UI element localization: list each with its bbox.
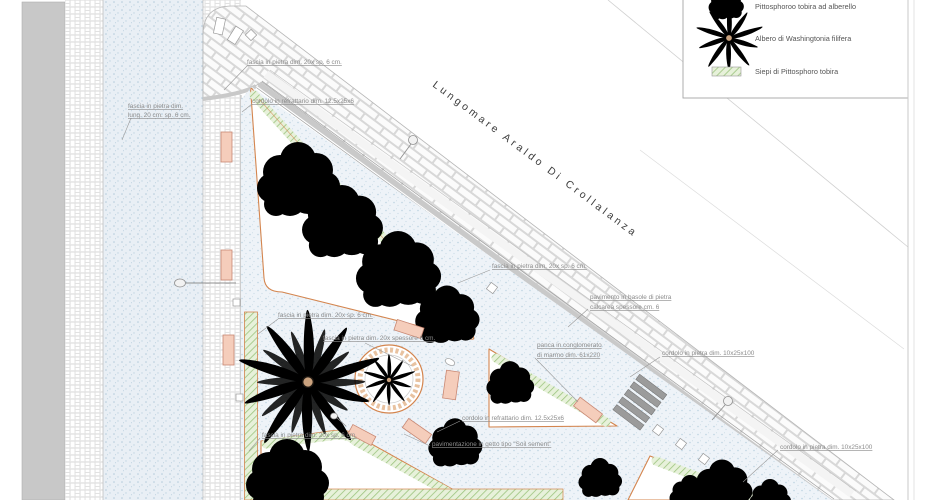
bollard	[233, 299, 240, 306]
annotation-fascia-left-1: fascia in pietra dim.	[128, 103, 183, 110]
site-plan-viewport: Lungomare Araldo Di Crollalanza	[0, 0, 950, 500]
annotation-fascia-bottom: fascia in pietra dim. 20x sp. 6 cm.	[262, 432, 357, 439]
circular-planter	[355, 345, 423, 413]
legend-item-label: Albero di Washingtonia filifera	[755, 34, 852, 43]
building-strip	[22, 2, 65, 500]
annotation-fascia-left-2: lung. 20 cm. sp. 6 cm.	[128, 112, 191, 119]
annotation-cordolo-refrattario-1: cordolo in refrattario dim. 12.5x25x6	[252, 98, 354, 105]
annotation-fascia-top: fascia in pietra dim. 20x sp. 6 cm.	[247, 59, 342, 66]
annotation-cordolo-refrattario-2: cordolo in refrattario dim. 12.5x25x6	[462, 415, 564, 422]
site-plan-drawing: Lungomare Araldo Di Crollalanza	[0, 0, 950, 500]
legend-item-label: Siepi di Pittosphoro tobira	[755, 67, 839, 76]
annotation-fascia-planter: fascia in pietra dim. 20x spessore 6 cm.	[323, 335, 435, 342]
annotation-soil-sement: pavimentazione in getto tipo "Soil semen…	[432, 441, 551, 448]
annotation-panca-2: di marmo dim. 61x220	[537, 352, 601, 359]
sidewalk-west	[65, 0, 103, 500]
annotation-pavimento-1: pavimento in basole di pietra	[590, 294, 672, 301]
hedge-band-bottom	[318, 489, 563, 500]
hedge-icon	[712, 67, 741, 76]
annotation-fascia-mid: fascia in pietra dim. 20x sp. 6 cm.	[492, 263, 587, 270]
bench	[221, 132, 232, 162]
legend: Pittosphoroo tobira ad alberello Albero …	[683, 0, 908, 98]
roadway-west	[103, 0, 203, 500]
annotation-fascia-palm: fascia in pietra dim. 20x sp. 6 cm.	[278, 312, 373, 319]
bollard	[236, 394, 243, 401]
legend-item-label: Pittosphoroo tobira ad alberello	[755, 2, 856, 11]
annotation-cordolo-pietra-1: cordolo in pietra dim. 10x25x100	[662, 350, 755, 357]
annotation-pavimento-2: calcarea spessore cm. 6	[590, 304, 660, 311]
annotation-panca-1: panca in conglomerato	[537, 342, 602, 349]
bench	[221, 250, 232, 280]
bench	[223, 335, 234, 365]
annotation-cordolo-pietra-2: cordolo in pietra dim. 10x25x100	[780, 444, 873, 451]
far-road-edge-2	[640, 150, 904, 349]
